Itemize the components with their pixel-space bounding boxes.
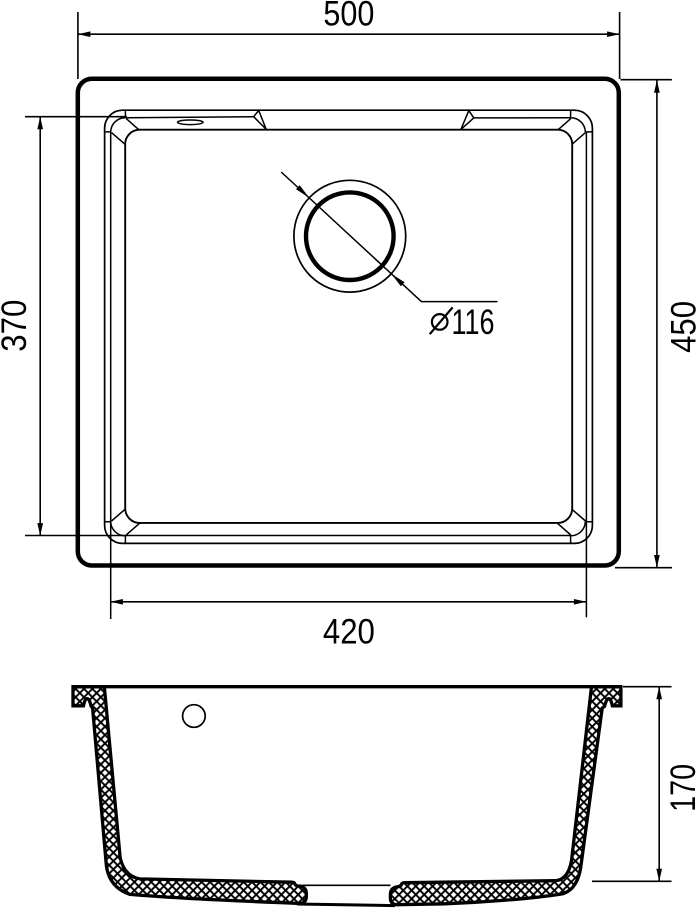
svg-text:450: 450 bbox=[664, 301, 696, 353]
svg-text:420: 420 bbox=[323, 613, 375, 652]
svg-text:370: 370 bbox=[0, 300, 34, 352]
svg-text:170: 170 bbox=[664, 764, 696, 812]
svg-text:116: 116 bbox=[452, 303, 495, 342]
svg-text:500: 500 bbox=[323, 0, 374, 34]
